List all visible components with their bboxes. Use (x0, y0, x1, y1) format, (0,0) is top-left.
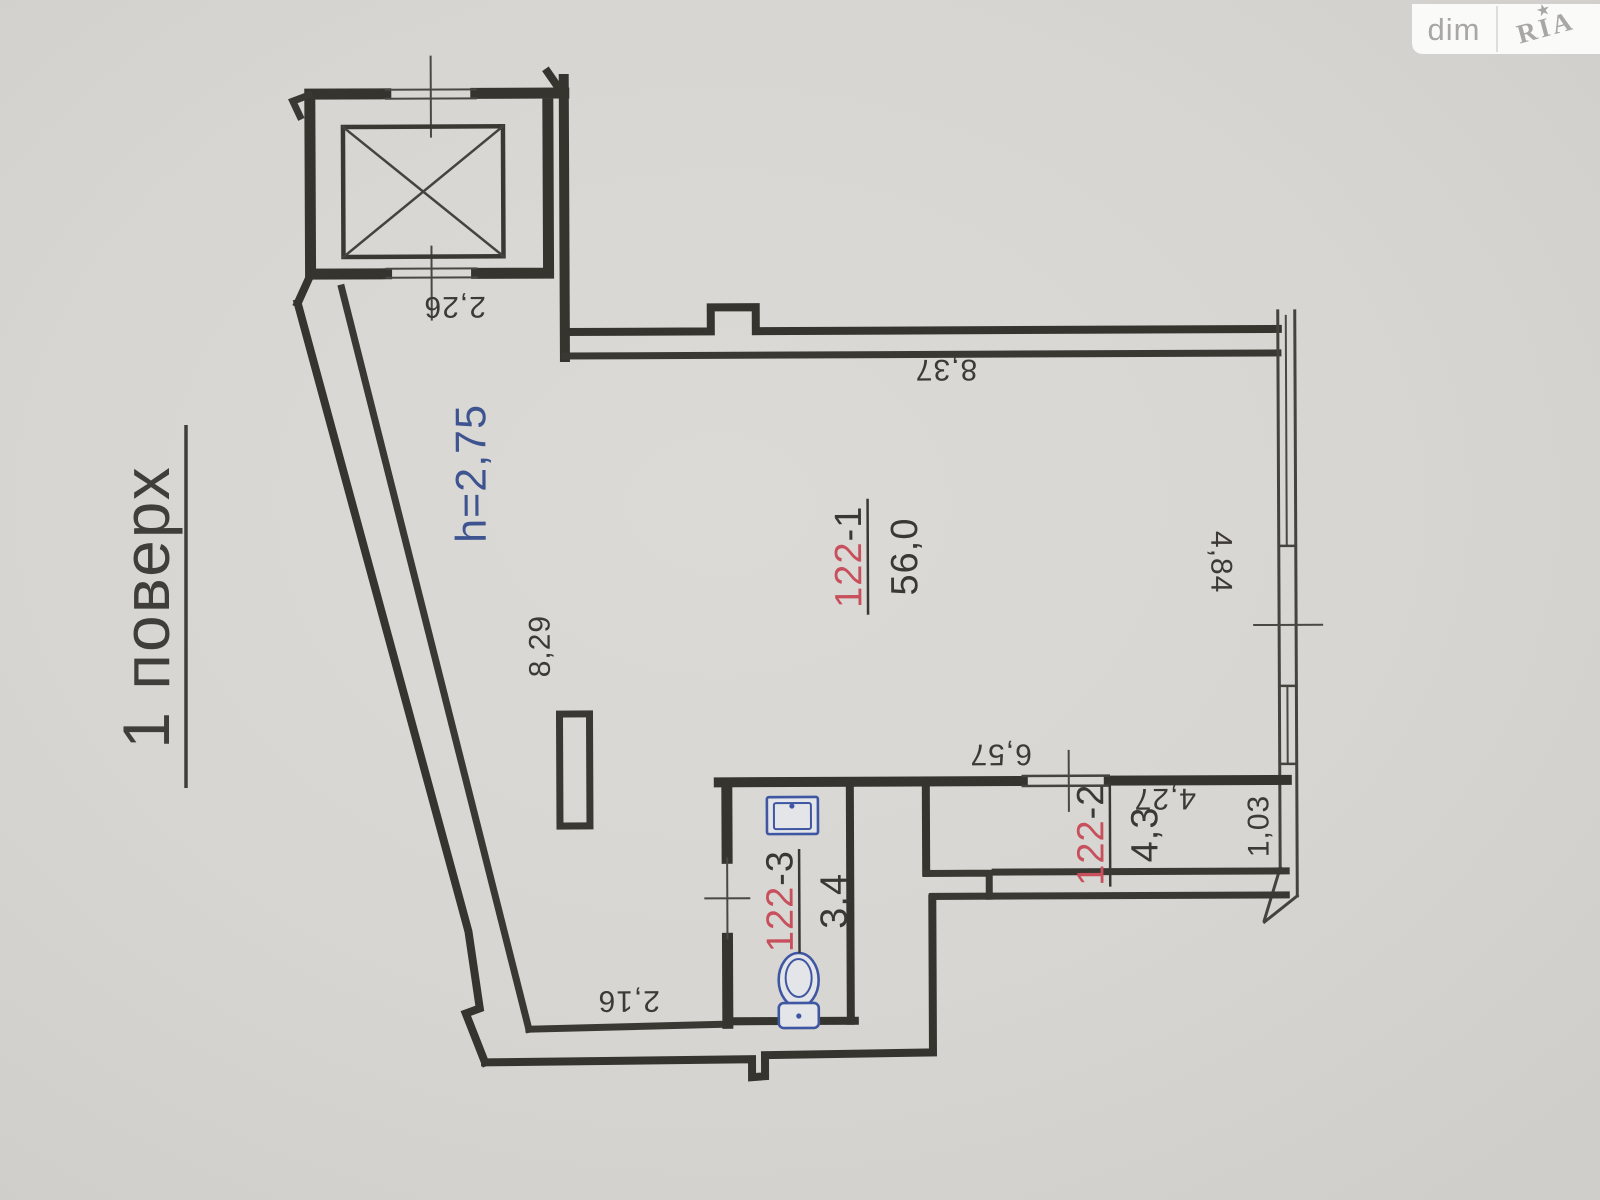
sink-icon (767, 797, 818, 834)
dimension-loggia-width: 1,03 (1242, 795, 1275, 858)
dimension-left-wall: 8,29 (524, 615, 557, 678)
dimension-right-wall: 4,84 (1204, 531, 1237, 594)
height-note: h=2,75 (447, 404, 496, 543)
loggia-wall (719, 780, 1287, 782)
dimension-top-wall: 8,37 (915, 353, 978, 386)
room-label-underline (868, 499, 869, 615)
room-id: 122-1 (828, 506, 870, 608)
floor-plan-svg: 122-1 56,0 122-2 4,3 122-3 3,4 h=2,75 2,… (0, 0, 1600, 1200)
entry-wall (564, 79, 565, 357)
dimension-elevator-width: 2,26 (423, 290, 486, 323)
loggia-bottom-lower (932, 895, 1286, 897)
floor-label: 1 поверх (109, 465, 183, 748)
room-area: 56,0 (884, 517, 926, 595)
room-id: 122-2 (1070, 784, 1112, 886)
room-area: 3,4 (814, 873, 856, 929)
room-id: 122-3 (759, 850, 801, 952)
floor-label-group: 1 поверх (109, 425, 186, 788)
dimension-loggia-length: 4,27 (1134, 782, 1197, 815)
bottom-wall-inner (529, 1024, 720, 1029)
watermark-dim-text: dim (1428, 12, 1481, 47)
dimension-bottom-wall: 2,16 (597, 984, 660, 1017)
watermark: dim RIA ★ (1412, 0, 1600, 54)
floor-plan-photo: 122-1 56,0 122-2 4,3 122-3 3,4 h=2,75 2,… (0, 0, 1600, 1200)
dimension-loggia-wall: 6,57 (969, 737, 1032, 770)
toilet-icon (779, 953, 819, 1028)
